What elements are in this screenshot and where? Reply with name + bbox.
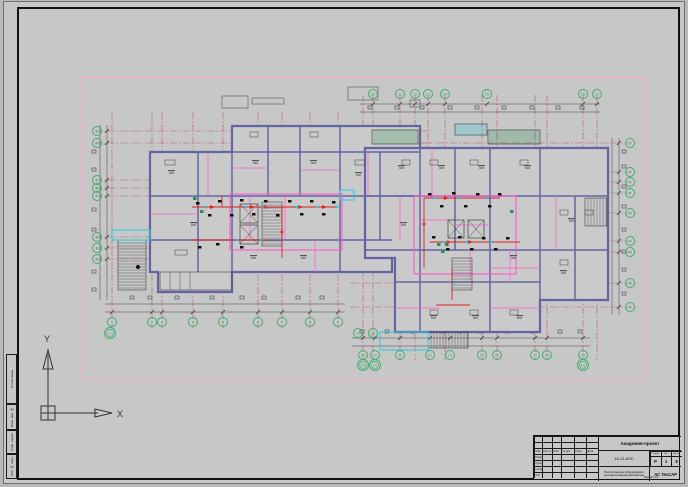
svg-text:11: 11 <box>398 92 403 97</box>
side-stamp-podp-data: Подп. и дата <box>6 430 17 454</box>
title-block: Изм.Кол.учЛист№ док.Подп.ДатаРазраб.Пров… <box>533 435 680 480</box>
svg-text:10: 10 <box>356 331 361 336</box>
svg-text:8: 8 <box>309 320 312 325</box>
svg-text:С: С <box>629 180 632 185</box>
svg-text:1: 1 <box>111 320 114 325</box>
svg-text:11: 11 <box>373 353 378 358</box>
walls-layer <box>150 126 608 332</box>
svg-text:2: 2 <box>151 320 154 325</box>
svg-text:Л: Л <box>629 281 632 286</box>
svg-text:М: М <box>628 250 631 255</box>
svg-text:А: А <box>96 257 99 262</box>
axis-bubble: 19 <box>578 360 589 371</box>
side-stamp-inv-podl: Инв. № подл. <box>6 454 17 479</box>
svg-text:13: 13 <box>426 92 431 97</box>
side-stamp-approved: Согласовано <box>6 354 17 404</box>
side-stamp-vzam-inv: Взам. инв. № <box>6 404 17 430</box>
ucs-y-label: Y <box>44 334 50 344</box>
svg-text:15: 15 <box>480 353 485 358</box>
svg-text:13: 13 <box>428 353 433 358</box>
svg-text:В: В <box>96 235 99 240</box>
title-block-project-name: Академия-проект <box>598 436 681 450</box>
axis-bubble: 14 <box>446 351 455 360</box>
svg-text:Б: Б <box>96 246 99 251</box>
svg-text:6: 6 <box>257 320 260 325</box>
svg-text:Е: Е <box>96 178 99 183</box>
title-block-revision-grid: Изм.Кол.учЛист№ док.Подп.ДатаРазраб.Пров… <box>534 436 598 478</box>
svg-text:10: 10 <box>361 363 366 368</box>
format-label: Формат А1 <box>644 475 658 479</box>
title-block-stage-table: СтадияЛистЛистовР18 <box>649 450 681 466</box>
svg-text:11: 11 <box>373 363 378 368</box>
svg-text:16: 16 <box>581 92 586 97</box>
title-block-cell <box>586 472 598 478</box>
svg-text:Ж: Ж <box>95 141 99 146</box>
svg-text:12: 12 <box>413 92 418 97</box>
ucs-x-label: X <box>117 409 123 419</box>
svg-text:У: У <box>629 141 632 146</box>
svg-text:19: 19 <box>581 353 586 358</box>
svg-text:19: 19 <box>581 363 586 368</box>
title-block-cell <box>542 472 552 478</box>
svg-text:И: И <box>96 129 99 134</box>
svg-text:14: 14 <box>443 92 448 97</box>
svg-text:4: 4 <box>192 320 195 325</box>
cad-sheet: 1234567891101112131415161718191011191011… <box>0 0 688 487</box>
svg-text:9: 9 <box>337 320 340 325</box>
svg-text:5: 5 <box>222 320 225 325</box>
svg-text:17: 17 <box>595 92 600 97</box>
title-block-cell <box>552 472 561 478</box>
axis-bubble: 11 <box>371 351 380 360</box>
svg-text:12: 12 <box>398 353 403 358</box>
svg-text:Д: Д <box>96 186 99 191</box>
axis-bubble: 15 <box>483 90 492 99</box>
svg-text:Н: Н <box>629 239 632 244</box>
axis-bubble: 13 <box>426 351 435 360</box>
svg-text:1: 1 <box>109 331 112 336</box>
svg-text:18: 18 <box>545 353 550 358</box>
svg-text:10: 10 <box>361 353 366 358</box>
svg-text:7: 7 <box>281 320 284 325</box>
floor-plan-canvas: 1234567891101112131415161718191011191011… <box>0 0 688 487</box>
svg-text:Р: Р <box>629 191 632 196</box>
axis-bubble: 11 <box>370 360 381 371</box>
title-block-cell <box>574 472 586 478</box>
title-block-doc-name: Расположение оборудования противопожарно… <box>598 466 649 481</box>
svg-text:3: 3 <box>161 320 164 325</box>
svg-text:16: 16 <box>495 353 500 358</box>
svg-text:11: 11 <box>371 331 376 336</box>
axis-bubble: 1 <box>105 328 116 339</box>
svg-text:14: 14 <box>448 353 453 358</box>
title-block-doc-code: 16-13-АПС <box>598 450 649 466</box>
svg-text:10: 10 <box>371 92 376 97</box>
svg-text:15: 15 <box>485 92 490 97</box>
svg-text:17: 17 <box>533 353 538 358</box>
axis-bubble: 10 <box>358 360 369 371</box>
title-block-cell: Утв. <box>534 472 542 478</box>
title-block-cell <box>561 472 574 478</box>
svg-text:П: П <box>629 211 632 216</box>
